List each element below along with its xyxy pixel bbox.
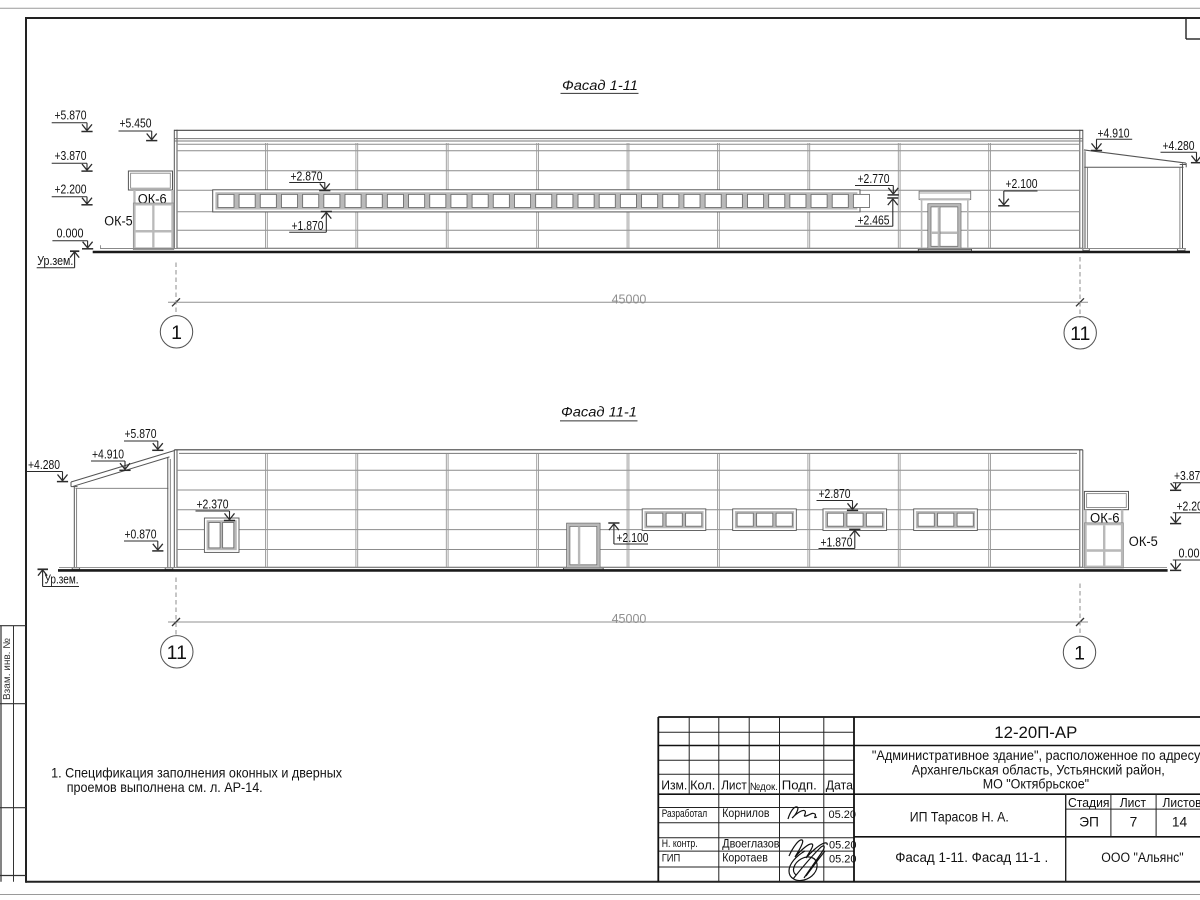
svg-text:ИП Тарасов Н. А.: ИП Тарасов Н. А. bbox=[910, 810, 1009, 825]
svg-text:+2.100: +2.100 bbox=[617, 531, 649, 545]
svg-text:+3.870: +3.870 bbox=[1174, 469, 1200, 483]
svg-text:Корнилов: Корнилов bbox=[722, 806, 769, 820]
svg-text:Кол.: Кол. bbox=[690, 778, 715, 793]
svg-text:0.000: 0.000 bbox=[57, 227, 84, 241]
svg-text:+4.280: +4.280 bbox=[28, 458, 60, 472]
svg-text:Ур.зем.: Ур.зем. bbox=[37, 254, 73, 268]
svg-text:Фасад 1-11: Фасад 1-11 bbox=[562, 78, 638, 93]
svg-text:45000: 45000 bbox=[612, 293, 647, 307]
svg-text:+2.465: +2.465 bbox=[858, 214, 890, 228]
svg-text:05.20: 05.20 bbox=[829, 840, 857, 852]
svg-text:+2.870: +2.870 bbox=[819, 487, 851, 501]
svg-text:11: 11 bbox=[167, 642, 187, 664]
svg-text:Изм.: Изм. bbox=[661, 778, 687, 793]
svg-text:+0.870: +0.870 bbox=[125, 527, 157, 541]
svg-text:+5.870: +5.870 bbox=[55, 109, 87, 123]
svg-text:№док.: №док. bbox=[750, 781, 778, 793]
svg-text:11: 11 bbox=[1070, 323, 1090, 345]
svg-text:+5.870: +5.870 bbox=[125, 427, 157, 441]
svg-text:+1.870: +1.870 bbox=[821, 535, 853, 549]
svg-text:ОК-5: ОК-5 bbox=[104, 214, 132, 229]
svg-text:+4.910: +4.910 bbox=[92, 447, 124, 461]
svg-text:проемов выполнена см. л. АР-14: проемов выполнена см. л. АР-14. bbox=[67, 780, 263, 795]
svg-text:+4.910: +4.910 bbox=[1098, 126, 1130, 140]
svg-text:45000: 45000 bbox=[612, 612, 647, 626]
svg-text:14: 14 bbox=[1172, 814, 1188, 829]
svg-text:0.000: 0.000 bbox=[1179, 546, 1200, 560]
svg-text:Архангельская область, Устьянс: Архангельская область, Устьянский район, bbox=[912, 762, 1165, 777]
svg-text:+2.370: +2.370 bbox=[197, 498, 229, 512]
svg-text:1: 1 bbox=[1074, 642, 1085, 664]
svg-text:7: 7 bbox=[1130, 814, 1138, 829]
svg-text:1: 1 bbox=[171, 322, 182, 344]
svg-text:Фасад 11-1: Фасад 11-1 bbox=[561, 405, 637, 420]
svg-text:+1.870: +1.870 bbox=[292, 219, 324, 233]
svg-text:+5.450: +5.450 bbox=[120, 117, 152, 131]
svg-text:12-20П-АР: 12-20П-АР bbox=[994, 724, 1077, 742]
svg-text:МО "Октябрьское": МО "Октябрьское" bbox=[983, 777, 1090, 792]
svg-text:Ур.зем.: Ур.зем. bbox=[45, 573, 79, 587]
svg-text:Стадия: Стадия bbox=[1068, 795, 1110, 810]
svg-text:Листов: Листов bbox=[1163, 795, 1200, 810]
svg-text:Лист: Лист bbox=[721, 778, 747, 793]
svg-text:ГИП: ГИП bbox=[662, 852, 681, 864]
svg-text:Подп.: Подп. bbox=[782, 778, 817, 793]
svg-text:ЭП: ЭП bbox=[1079, 814, 1099, 829]
svg-text:+2.770: +2.770 bbox=[858, 172, 890, 186]
svg-text:Взам. инв. №: Взам. инв. № bbox=[2, 638, 13, 700]
svg-text:Н. контр.: Н. контр. bbox=[662, 838, 698, 850]
svg-text:05.20: 05.20 bbox=[829, 809, 857, 821]
svg-text:+2.200: +2.200 bbox=[1177, 500, 1200, 514]
svg-text:1. Спецификация заполнения око: 1. Спецификация заполнения оконных и две… bbox=[51, 766, 342, 781]
svg-text:+2.100: +2.100 bbox=[1006, 177, 1038, 191]
svg-text:Фасад 1-11. Фасад 11-1 .: Фасад 1-11. Фасад 11-1 . bbox=[895, 850, 1048, 865]
svg-text:ООО "Альянс": ООО "Альянс" bbox=[1101, 850, 1184, 865]
svg-text:+4.280: +4.280 bbox=[1163, 139, 1195, 153]
svg-text:+3.870: +3.870 bbox=[55, 149, 87, 163]
svg-text:+2.200: +2.200 bbox=[55, 183, 87, 197]
svg-text:"Административное здание", рас: "Административное здание", расположенное… bbox=[872, 748, 1200, 763]
svg-text:Двоеглазов: Двоеглазов bbox=[722, 837, 779, 851]
svg-text:Дата: Дата bbox=[826, 778, 854, 793]
svg-text:Лист: Лист bbox=[1120, 795, 1146, 810]
svg-text:ОК-5: ОК-5 bbox=[1129, 534, 1158, 549]
svg-text:05.20: 05.20 bbox=[829, 854, 857, 866]
svg-text:Разработал: Разработал bbox=[662, 808, 708, 820]
svg-text:Коротаев: Коротаев bbox=[722, 851, 768, 865]
svg-text:+2.870: +2.870 bbox=[291, 169, 323, 183]
